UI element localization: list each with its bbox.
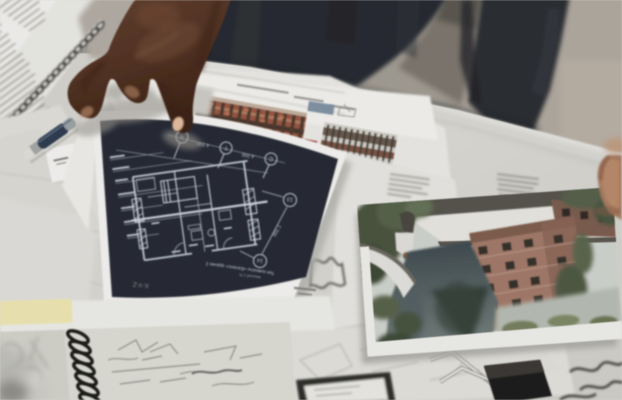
svg-text:13: 13 — [287, 195, 294, 202]
svg-text:14: 14 — [257, 256, 264, 263]
